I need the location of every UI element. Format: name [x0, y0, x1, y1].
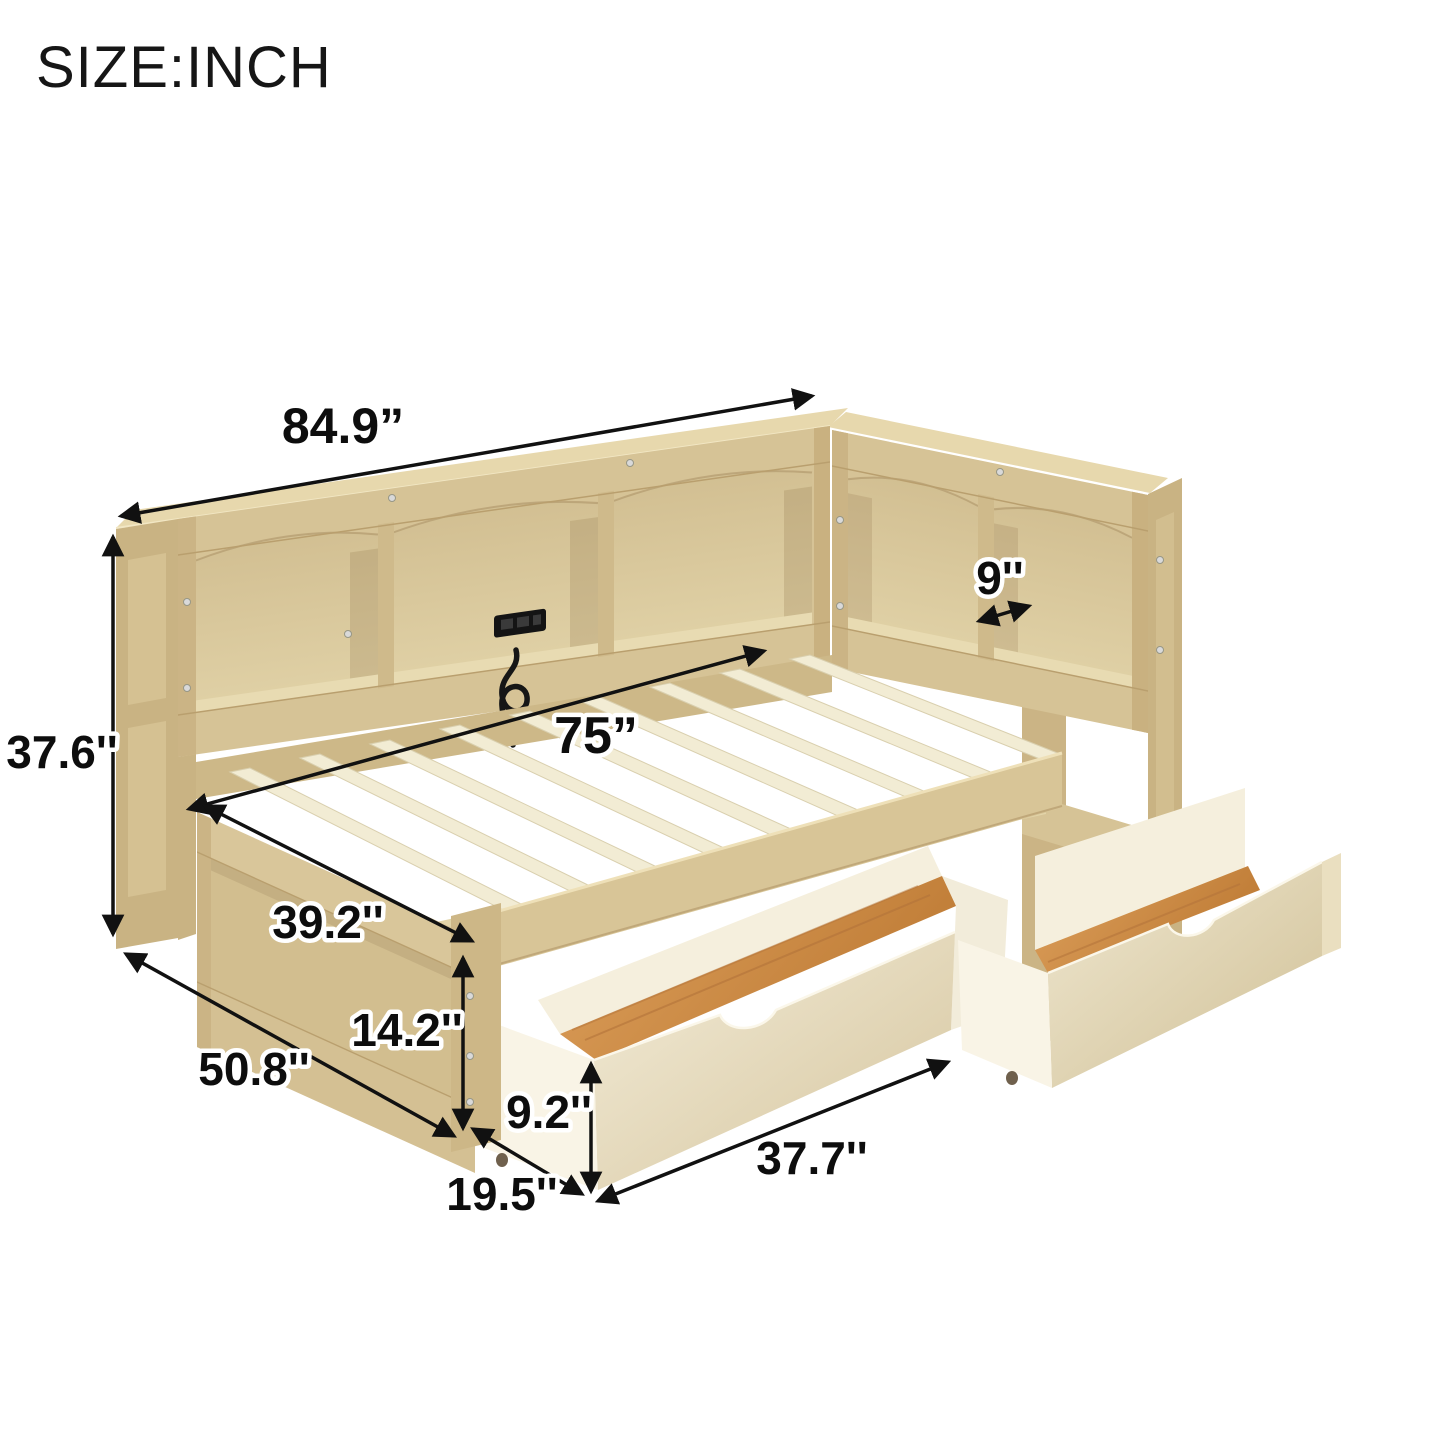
dim-label-drawer-length: 37.7''	[756, 1132, 867, 1184]
product-dimension-page: SIZE:INCH	[0, 0, 1445, 1445]
bed-diagram: 84.9” 9'' 37.6'' 75” 39.2'' 14.2'' 50.8'…	[0, 0, 1445, 1445]
dim-label-shelf-depth: 9''	[976, 552, 1023, 604]
dim-label-drawer-height: 9.2''	[506, 1086, 592, 1138]
dim-label-bed-width: 39.2''	[272, 896, 383, 948]
dim-label-frame-height: 14.2''	[351, 1004, 462, 1056]
dim-label-bookcase-height: 37.6''	[6, 726, 117, 778]
dimension-bookcase-height: 37.6''	[6, 537, 117, 934]
storage-drawer-right	[958, 788, 1341, 1088]
dim-label-drawer-depth: 19.5''	[446, 1168, 557, 1220]
dim-label-overall-depth: 50.8''	[198, 1043, 309, 1095]
dim-label-overall-length: 84.9”	[282, 398, 404, 454]
dim-label-slat-length: 75”	[554, 707, 638, 765]
